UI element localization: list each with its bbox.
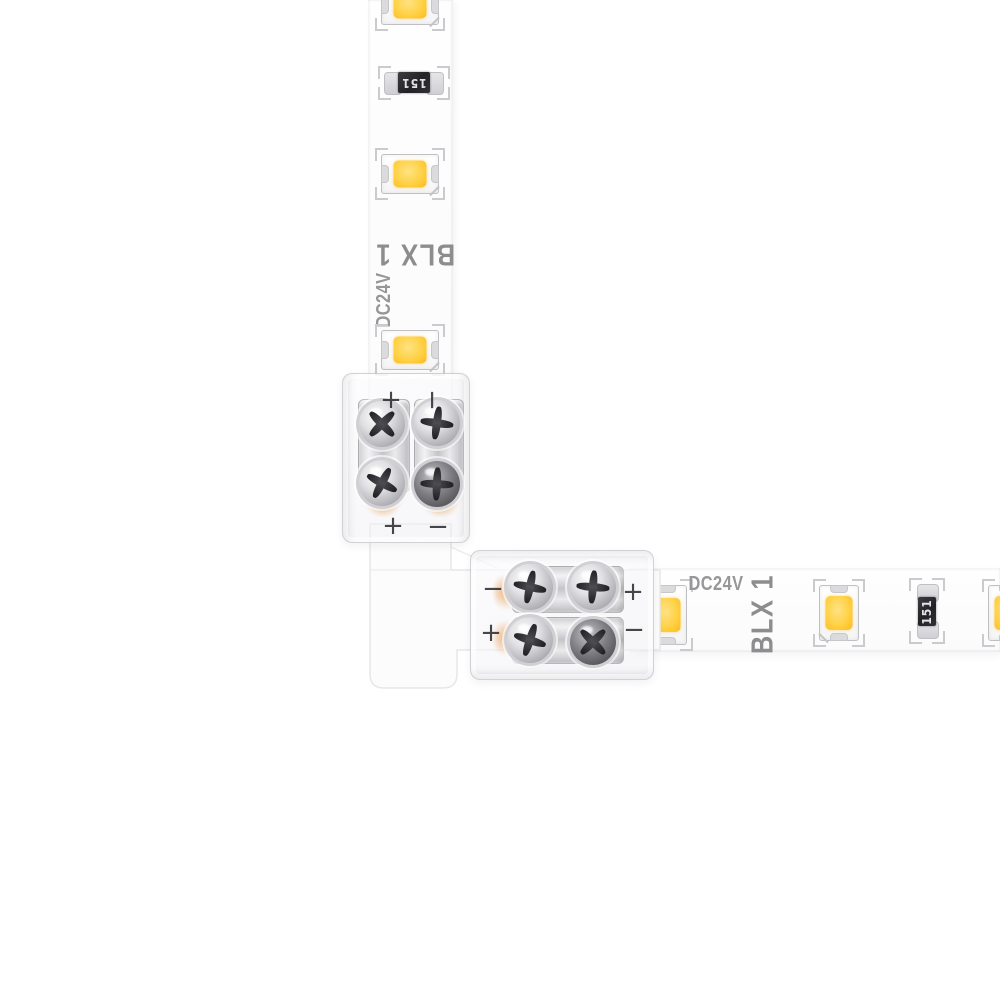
plus-mark: + (480, 620, 502, 646)
corner-pcb (0, 0, 1000, 1000)
phillips-screw (570, 619, 616, 665)
minus-mark: − (482, 576, 504, 602)
plus-mark: + (380, 387, 402, 413)
minus-mark: − (623, 617, 645, 643)
minus-mark: − (419, 389, 445, 411)
minus-mark: − (427, 514, 449, 540)
phillips-screw (570, 564, 616, 610)
phillips-screw (359, 460, 405, 506)
phillips-screw (507, 564, 553, 610)
plus-mark: + (622, 579, 644, 605)
phillips-screw (507, 617, 553, 663)
phillips-screw (414, 461, 460, 507)
plus-mark: + (382, 513, 404, 539)
product-photo-led-strip-corner-connector: 151 BLX 1 DC24V (0, 0, 1000, 1000)
